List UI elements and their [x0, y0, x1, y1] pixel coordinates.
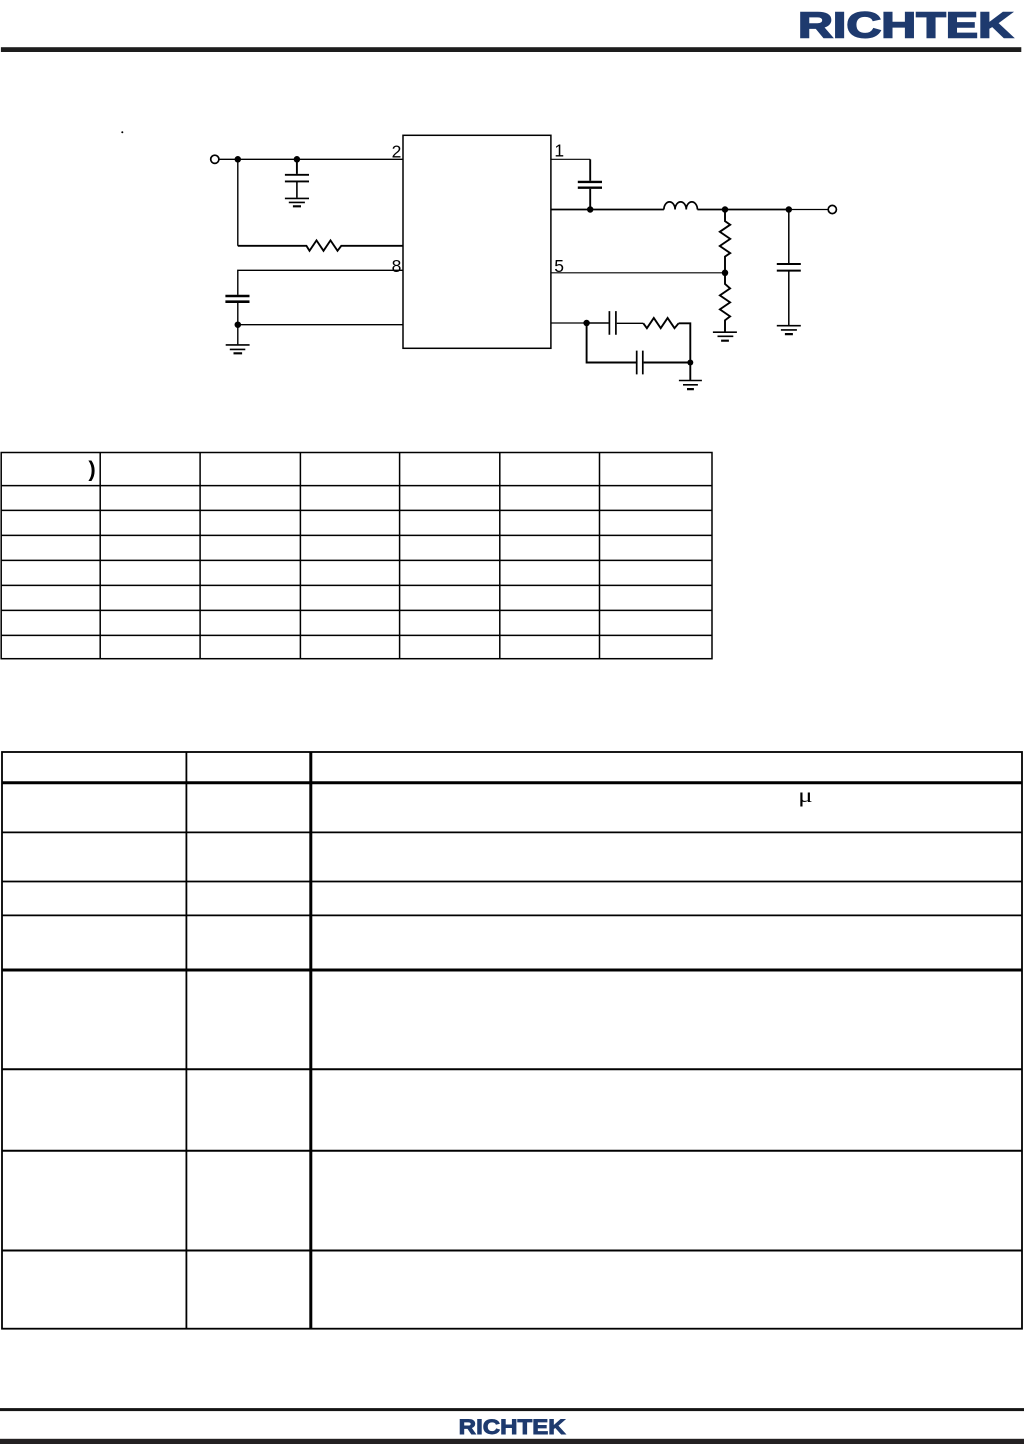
- svg-text:RICHTEK: RICHTEK: [459, 1416, 567, 1439]
- svg-text:8: 8: [392, 256, 402, 276]
- svg-text:): ): [88, 457, 95, 482]
- svg-text:5: 5: [554, 256, 564, 276]
- svg-text:RICHTEK: RICHTEK: [798, 5, 1014, 46]
- svg-text:μ: μ: [798, 785, 813, 807]
- svg-text:1: 1: [554, 141, 564, 161]
- svg-text:2: 2: [392, 141, 402, 161]
